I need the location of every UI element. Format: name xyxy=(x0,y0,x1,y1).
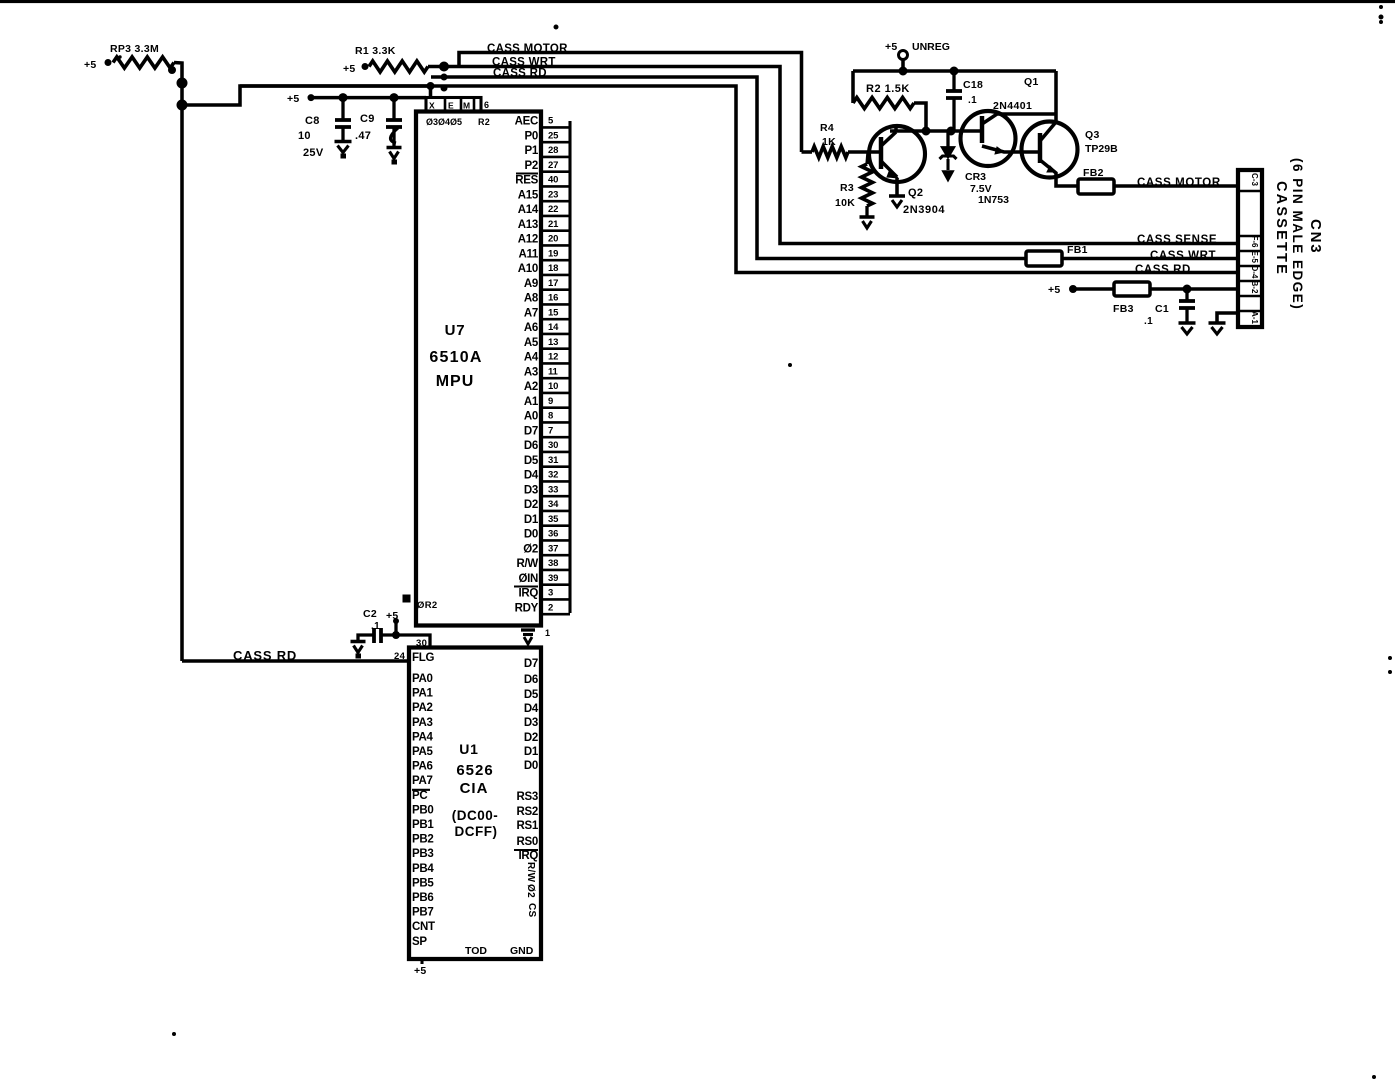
svg-text:28: 28 xyxy=(548,145,558,156)
svg-text:Q2: Q2 xyxy=(908,187,923,199)
svg-text:R2: R2 xyxy=(478,117,490,127)
svg-text:18: 18 xyxy=(548,263,558,274)
svg-text:CASSETTE: CASSETTE xyxy=(1273,181,1289,276)
svg-text:+5: +5 xyxy=(84,59,97,71)
svg-text:A14: A14 xyxy=(518,204,539,216)
svg-text:CNT: CNT xyxy=(412,921,435,933)
svg-text:B-2: B-2 xyxy=(1250,281,1259,294)
svg-text:UNREG: UNREG xyxy=(912,41,950,53)
svg-text:10: 10 xyxy=(298,130,311,142)
svg-text:+5: +5 xyxy=(1048,284,1061,296)
svg-text:A2: A2 xyxy=(524,381,538,393)
svg-text:C2: C2 xyxy=(363,608,377,620)
svg-text:RDY: RDY xyxy=(515,602,539,614)
svg-text:20: 20 xyxy=(548,234,558,245)
svg-text:IRQ: IRQ xyxy=(518,588,538,600)
svg-text:22: 22 xyxy=(548,204,558,215)
svg-text:21: 21 xyxy=(548,219,559,230)
svg-text:A15: A15 xyxy=(518,189,539,201)
svg-text:+5: +5 xyxy=(343,63,356,75)
svg-text:8: 8 xyxy=(548,411,553,422)
svg-text:40: 40 xyxy=(548,175,558,186)
svg-text:D6: D6 xyxy=(524,440,538,452)
svg-text:PB3: PB3 xyxy=(412,848,433,860)
svg-text:R/W: R/W xyxy=(517,558,539,570)
svg-text:37: 37 xyxy=(548,543,558,554)
svg-text:CASS MOTOR: CASS MOTOR xyxy=(1137,177,1221,189)
svg-text:A8: A8 xyxy=(524,293,539,305)
svg-text:X: X xyxy=(429,101,435,111)
svg-text:A10: A10 xyxy=(518,263,538,275)
svg-text:36: 36 xyxy=(548,529,558,540)
svg-text:U7: U7 xyxy=(445,322,466,339)
svg-text:A0: A0 xyxy=(524,411,538,423)
svg-text:.47: .47 xyxy=(355,130,371,142)
svg-text:PC: PC xyxy=(412,790,427,802)
svg-text:15: 15 xyxy=(548,307,559,318)
svg-text:CASS RD: CASS RD xyxy=(1135,264,1191,276)
svg-text:RS2: RS2 xyxy=(517,806,538,818)
svg-text:A1: A1 xyxy=(524,396,539,408)
svg-text:17: 17 xyxy=(548,278,558,289)
svg-text:23: 23 xyxy=(548,189,558,200)
svg-text:PA6: PA6 xyxy=(412,761,433,773)
svg-text:19: 19 xyxy=(548,248,558,259)
svg-text:P1: P1 xyxy=(525,145,539,157)
svg-text:PA4: PA4 xyxy=(412,731,434,743)
svg-text:A5: A5 xyxy=(524,337,539,349)
svg-text:PB0: PB0 xyxy=(412,804,433,816)
svg-text:CASS MOTOR: CASS MOTOR xyxy=(487,43,568,55)
svg-text:D1: D1 xyxy=(524,746,539,758)
svg-text:PA5: PA5 xyxy=(412,746,434,758)
svg-text:11: 11 xyxy=(548,366,559,377)
svg-text:C9: C9 xyxy=(360,113,375,125)
svg-text:A11: A11 xyxy=(518,248,538,260)
svg-text:31: 31 xyxy=(548,455,559,466)
svg-text:PA3: PA3 xyxy=(412,717,433,729)
svg-text:RES: RES xyxy=(515,175,538,187)
svg-text:PB7: PB7 xyxy=(412,907,433,919)
svg-text:E: E xyxy=(448,101,454,111)
svg-text:2N4401: 2N4401 xyxy=(993,100,1032,112)
svg-text:32: 32 xyxy=(548,470,558,481)
svg-text:A-1: A-1 xyxy=(1250,311,1259,324)
svg-text:C-3: C-3 xyxy=(1250,173,1259,186)
svg-text:A6: A6 xyxy=(524,322,538,334)
svg-text:A12: A12 xyxy=(518,234,538,246)
svg-text:Ø2: Ø2 xyxy=(523,543,538,555)
svg-text:TOD: TOD xyxy=(465,945,487,957)
svg-text:RS3: RS3 xyxy=(517,791,538,803)
svg-text:CIA: CIA xyxy=(460,780,489,797)
svg-text:6510A: 6510A xyxy=(429,349,482,366)
svg-text:FB2: FB2 xyxy=(1083,167,1104,179)
svg-text:R/W: R/W xyxy=(525,862,536,883)
svg-text:13: 13 xyxy=(548,337,558,348)
svg-text:D7: D7 xyxy=(524,425,538,437)
svg-text:1N753: 1N753 xyxy=(978,194,1009,206)
svg-text:A3: A3 xyxy=(524,366,538,378)
svg-text:ØR2: ØR2 xyxy=(417,600,437,611)
svg-text:Ø3Ø4Ø5: Ø3Ø4Ø5 xyxy=(426,117,462,127)
svg-text:R4: R4 xyxy=(820,122,834,134)
svg-text:FB1: FB1 xyxy=(1067,244,1088,256)
svg-text:CASS WRT: CASS WRT xyxy=(1150,250,1216,262)
svg-text:(6 PIN MALE EDGE): (6 PIN MALE EDGE) xyxy=(1290,158,1305,310)
svg-text:Q3: Q3 xyxy=(1085,129,1100,141)
svg-text:P2: P2 xyxy=(525,160,538,172)
svg-text:30: 30 xyxy=(548,440,558,451)
svg-text:(DC00-: (DC00- xyxy=(452,808,499,823)
svg-text:D2: D2 xyxy=(524,499,538,511)
svg-text:A9: A9 xyxy=(524,278,538,290)
svg-text:D-4: D-4 xyxy=(1250,266,1259,279)
svg-text:D5: D5 xyxy=(524,689,539,701)
svg-text:24: 24 xyxy=(394,651,406,662)
svg-text:.1: .1 xyxy=(1144,316,1153,327)
svg-text:33: 33 xyxy=(548,484,558,495)
svg-text:D4: D4 xyxy=(524,470,539,482)
svg-text:CASS RD: CASS RD xyxy=(493,68,547,80)
svg-text:P0: P0 xyxy=(525,130,538,142)
svg-text:CN3: CN3 xyxy=(1307,219,1324,254)
svg-text:27: 27 xyxy=(548,160,558,171)
svg-text:A7: A7 xyxy=(524,307,538,319)
svg-text:FLG: FLG xyxy=(412,652,434,664)
svg-text:PB1: PB1 xyxy=(412,819,434,831)
svg-text:34: 34 xyxy=(548,499,559,510)
svg-text:C8: C8 xyxy=(305,115,320,127)
svg-text:SP: SP xyxy=(412,936,427,948)
svg-text:PB6: PB6 xyxy=(412,892,433,904)
svg-text:38: 38 xyxy=(548,558,558,569)
svg-text:+5: +5 xyxy=(287,93,300,105)
svg-text:D7: D7 xyxy=(524,658,538,670)
svg-text:5: 5 xyxy=(548,116,554,127)
svg-text:9: 9 xyxy=(548,396,553,407)
svg-text:39: 39 xyxy=(548,573,558,584)
svg-text:PA7: PA7 xyxy=(412,775,433,787)
svg-text:D3: D3 xyxy=(524,484,538,496)
svg-text:D4: D4 xyxy=(524,703,539,715)
svg-text:7: 7 xyxy=(548,425,553,436)
svg-text:PA0: PA0 xyxy=(412,673,433,685)
svg-text:R2 1.5K: R2 1.5K xyxy=(866,83,910,95)
svg-text:FB3: FB3 xyxy=(1113,303,1134,315)
svg-text:D6: D6 xyxy=(524,674,538,686)
svg-text:F-6: F-6 xyxy=(1250,236,1259,249)
svg-text:6: 6 xyxy=(484,100,489,110)
svg-text:C1: C1 xyxy=(1155,303,1169,315)
svg-text:3: 3 xyxy=(548,588,553,599)
svg-text:CASS RD: CASS RD xyxy=(233,648,297,663)
svg-text:Q1: Q1 xyxy=(1024,76,1039,88)
svg-text:25: 25 xyxy=(548,130,559,141)
svg-text:2N3904: 2N3904 xyxy=(903,204,945,216)
svg-text:R1 3.3K: R1 3.3K xyxy=(355,45,396,57)
svg-text:IRQ: IRQ xyxy=(518,850,538,862)
svg-text:TP29B: TP29B xyxy=(1085,143,1118,155)
svg-text:Ø2: Ø2 xyxy=(525,884,536,898)
svg-text:D0: D0 xyxy=(524,529,538,541)
svg-text:PA2: PA2 xyxy=(412,702,433,714)
svg-text:A13: A13 xyxy=(518,219,538,231)
svg-text:12: 12 xyxy=(548,352,558,363)
svg-text:D0: D0 xyxy=(524,760,538,772)
svg-text:RS0: RS0 xyxy=(517,836,538,848)
svg-text:16: 16 xyxy=(548,293,558,304)
svg-text:M: M xyxy=(463,101,470,111)
svg-text:14: 14 xyxy=(548,322,559,333)
svg-text:A4: A4 xyxy=(524,352,539,364)
svg-text:R3: R3 xyxy=(840,182,854,194)
svg-text:D3: D3 xyxy=(524,717,538,729)
svg-text:PB5: PB5 xyxy=(412,877,434,889)
svg-text:RP3 3.3M: RP3 3.3M xyxy=(110,43,159,55)
svg-text:25V: 25V xyxy=(303,147,324,159)
svg-text:6526: 6526 xyxy=(456,762,493,779)
svg-text:MPU: MPU xyxy=(436,373,475,390)
svg-text:+5: +5 xyxy=(885,41,898,53)
svg-text:1: 1 xyxy=(545,628,550,638)
svg-text:35: 35 xyxy=(548,514,559,525)
svg-text:E-5: E-5 xyxy=(1250,251,1259,264)
svg-text:+5: +5 xyxy=(414,965,427,977)
svg-text:CR3: CR3 xyxy=(965,171,986,183)
svg-text:PB2: PB2 xyxy=(412,834,433,846)
svg-text:CASS SENSE: CASS SENSE xyxy=(1137,234,1217,246)
svg-text:PB4: PB4 xyxy=(412,863,434,875)
svg-text:DCFF): DCFF) xyxy=(455,824,498,839)
svg-text:CS: CS xyxy=(526,903,537,918)
svg-text:PA1: PA1 xyxy=(412,688,434,700)
svg-text:RS1: RS1 xyxy=(517,820,539,832)
svg-text:AEC: AEC xyxy=(515,116,538,128)
svg-text:10K: 10K xyxy=(835,197,855,209)
svg-text:C18: C18 xyxy=(963,79,983,91)
svg-text:GND: GND xyxy=(510,945,534,957)
svg-text:10: 10 xyxy=(548,381,558,392)
svg-text:ØIN: ØIN xyxy=(518,573,538,585)
svg-text:2: 2 xyxy=(548,602,553,613)
svg-text:U1: U1 xyxy=(459,741,479,757)
svg-text:.1: .1 xyxy=(968,95,977,106)
svg-text:D1: D1 xyxy=(524,514,539,526)
svg-text:D5: D5 xyxy=(524,455,539,467)
svg-text:D2: D2 xyxy=(524,732,538,744)
